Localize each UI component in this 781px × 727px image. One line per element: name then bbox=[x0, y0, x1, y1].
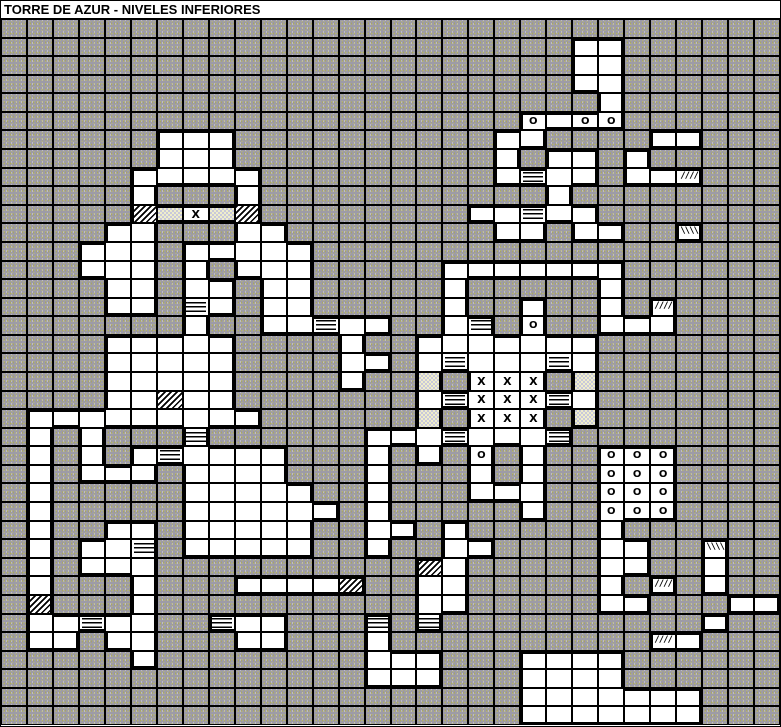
wall-cell bbox=[313, 446, 339, 465]
floor-cell bbox=[494, 130, 520, 149]
slope-down-cell: \\\\ bbox=[702, 539, 728, 558]
floor-cell bbox=[572, 391, 598, 410]
wall-cell bbox=[209, 558, 235, 577]
wall-cell bbox=[287, 168, 313, 187]
wall-cell bbox=[235, 372, 261, 391]
wall-cell bbox=[1, 483, 27, 502]
wall-cell bbox=[157, 483, 183, 502]
wall-cell bbox=[650, 595, 676, 614]
hatch-cell bbox=[416, 558, 442, 577]
wall-cell bbox=[391, 93, 417, 112]
door-cell bbox=[416, 409, 442, 428]
wall-cell bbox=[650, 335, 676, 354]
wall-cell bbox=[157, 75, 183, 94]
wall-cell bbox=[235, 706, 261, 725]
stairs-cell bbox=[183, 428, 209, 447]
wall-cell bbox=[494, 93, 520, 112]
floor-cell bbox=[209, 298, 235, 317]
wall-cell bbox=[53, 688, 79, 707]
floor-cell bbox=[27, 465, 53, 484]
wall-cell bbox=[442, 669, 468, 688]
wall-cell bbox=[494, 75, 520, 94]
wall-cell bbox=[598, 186, 624, 205]
wall-cell bbox=[53, 595, 79, 614]
wall-cell bbox=[339, 428, 365, 447]
floor-cell bbox=[313, 576, 339, 595]
floor-cell bbox=[572, 75, 598, 94]
wall-cell bbox=[1, 335, 27, 354]
floor-cell bbox=[598, 706, 624, 725]
wall-cell bbox=[702, 56, 728, 75]
wall-cell bbox=[494, 632, 520, 651]
wall-cell bbox=[468, 558, 494, 577]
wall-cell bbox=[468, 595, 494, 614]
wall-cell bbox=[391, 38, 417, 57]
floor-cell bbox=[235, 261, 261, 280]
wall-cell bbox=[624, 56, 650, 75]
wall-cell bbox=[624, 614, 650, 633]
wall-cell bbox=[676, 576, 702, 595]
wall-cell bbox=[105, 19, 131, 38]
wall-cell bbox=[313, 242, 339, 261]
floor-cell bbox=[546, 205, 572, 224]
wall-cell bbox=[365, 186, 391, 205]
wall-cell bbox=[365, 56, 391, 75]
wall-cell bbox=[157, 112, 183, 131]
wall-cell bbox=[131, 38, 157, 57]
wall-cell bbox=[468, 186, 494, 205]
wall-cell bbox=[1, 502, 27, 521]
floor-cell bbox=[209, 130, 235, 149]
wall-cell bbox=[79, 632, 105, 651]
floor-cell bbox=[157, 353, 183, 372]
wall-cell bbox=[520, 632, 546, 651]
wall-cell bbox=[728, 223, 754, 242]
wall-cell bbox=[235, 298, 261, 317]
floor-cell bbox=[572, 149, 598, 168]
floor-cell bbox=[27, 539, 53, 558]
floor-cell bbox=[624, 149, 650, 168]
wall-cell bbox=[287, 223, 313, 242]
wall-cell bbox=[105, 186, 131, 205]
wall-cell bbox=[365, 335, 391, 354]
wall-cell bbox=[365, 261, 391, 280]
wall-cell bbox=[416, 149, 442, 168]
floor-cell bbox=[598, 651, 624, 670]
wall-cell bbox=[676, 93, 702, 112]
floor-cell bbox=[105, 242, 131, 261]
wall-cell bbox=[183, 595, 209, 614]
wall-cell bbox=[494, 688, 520, 707]
wall-cell bbox=[53, 19, 79, 38]
wall-cell bbox=[494, 465, 520, 484]
floor-cell bbox=[416, 669, 442, 688]
wall-cell bbox=[339, 38, 365, 57]
wall-cell bbox=[546, 242, 572, 261]
wall-cell bbox=[598, 19, 624, 38]
wall-cell bbox=[235, 335, 261, 354]
floor-cell bbox=[105, 614, 131, 633]
wall-cell bbox=[520, 93, 546, 112]
wall-cell bbox=[365, 130, 391, 149]
floor-cell bbox=[572, 669, 598, 688]
wall-cell bbox=[365, 168, 391, 187]
hatch-cell bbox=[27, 595, 53, 614]
floor-cell bbox=[287, 502, 313, 521]
wall-cell bbox=[391, 56, 417, 75]
floor-cell bbox=[572, 56, 598, 75]
wall-cell bbox=[235, 56, 261, 75]
floor-cell bbox=[287, 298, 313, 317]
wall-cell bbox=[598, 205, 624, 224]
wall-cell bbox=[702, 130, 728, 149]
floor-cell bbox=[598, 279, 624, 298]
floor-cell bbox=[365, 502, 391, 521]
wall-cell bbox=[261, 19, 287, 38]
wall-cell bbox=[235, 112, 261, 131]
wall-cell bbox=[313, 521, 339, 540]
wall-cell bbox=[261, 595, 287, 614]
floor-cell bbox=[494, 168, 520, 187]
wall-cell bbox=[261, 558, 287, 577]
floor-cell bbox=[235, 483, 261, 502]
floor-cell bbox=[131, 391, 157, 410]
wall-cell bbox=[27, 335, 53, 354]
wall-cell bbox=[339, 168, 365, 187]
wall-cell bbox=[572, 130, 598, 149]
wall-cell bbox=[235, 688, 261, 707]
wall-cell bbox=[157, 428, 183, 447]
wall-cell bbox=[702, 502, 728, 521]
wall-cell bbox=[157, 706, 183, 725]
wall-cell bbox=[209, 632, 235, 651]
wall-cell bbox=[157, 242, 183, 261]
wall-cell bbox=[105, 149, 131, 168]
wall-cell bbox=[79, 391, 105, 410]
wall-cell bbox=[53, 130, 79, 149]
wall-cell bbox=[105, 112, 131, 131]
wall-cell bbox=[313, 669, 339, 688]
wall-cell bbox=[624, 409, 650, 428]
wall-cell bbox=[183, 706, 209, 725]
wall-cell bbox=[79, 483, 105, 502]
wall-cell bbox=[416, 168, 442, 187]
wall-cell bbox=[1, 558, 27, 577]
floor-cell bbox=[79, 261, 105, 280]
wall-cell bbox=[79, 75, 105, 94]
wall-cell bbox=[79, 205, 105, 224]
wall-cell bbox=[339, 186, 365, 205]
wall-cell bbox=[105, 688, 131, 707]
floor-cell bbox=[598, 261, 624, 280]
wall-cell bbox=[183, 38, 209, 57]
floor-cell bbox=[131, 335, 157, 354]
wall-cell bbox=[105, 205, 131, 224]
floor-cell bbox=[209, 409, 235, 428]
wall-cell bbox=[1, 186, 27, 205]
wall-cell bbox=[650, 38, 676, 57]
wall-cell bbox=[546, 614, 572, 633]
floor-cell bbox=[209, 168, 235, 187]
wall-cell bbox=[442, 186, 468, 205]
wall-cell bbox=[391, 539, 417, 558]
wall-cell bbox=[572, 502, 598, 521]
wall-cell bbox=[157, 465, 183, 484]
marker-o-cell: O bbox=[598, 465, 624, 484]
wall-cell bbox=[494, 706, 520, 725]
wall-cell bbox=[754, 19, 780, 38]
wall-cell bbox=[702, 149, 728, 168]
wall-cell bbox=[546, 446, 572, 465]
wall-cell bbox=[702, 261, 728, 280]
floor-cell bbox=[261, 261, 287, 280]
wall-cell bbox=[1, 93, 27, 112]
wall-cell bbox=[676, 372, 702, 391]
floor-cell bbox=[546, 669, 572, 688]
wall-cell bbox=[313, 595, 339, 614]
wall-cell bbox=[416, 706, 442, 725]
marker-o-cell: O bbox=[624, 446, 650, 465]
wall-cell bbox=[702, 706, 728, 725]
wall-cell bbox=[650, 93, 676, 112]
wall-cell bbox=[53, 168, 79, 187]
wall-cell bbox=[650, 558, 676, 577]
wall-cell bbox=[468, 614, 494, 633]
wall-cell bbox=[754, 558, 780, 577]
wall-cell bbox=[572, 558, 598, 577]
wall-cell bbox=[79, 149, 105, 168]
floor-cell bbox=[520, 261, 546, 280]
floor-cell bbox=[209, 149, 235, 168]
wall-cell bbox=[702, 205, 728, 224]
floor-cell bbox=[598, 93, 624, 112]
wall-cell bbox=[79, 688, 105, 707]
wall-cell bbox=[1, 391, 27, 410]
floor-cell bbox=[287, 316, 313, 335]
stairs-cell bbox=[313, 316, 339, 335]
floor-cell bbox=[209, 446, 235, 465]
wall-cell bbox=[520, 279, 546, 298]
wall-cell bbox=[702, 465, 728, 484]
wall-cell bbox=[572, 595, 598, 614]
floor-cell bbox=[598, 75, 624, 94]
floor-cell bbox=[572, 335, 598, 354]
floor-cell bbox=[235, 632, 261, 651]
wall-cell bbox=[209, 261, 235, 280]
floor-cell bbox=[494, 261, 520, 280]
floor-cell bbox=[365, 483, 391, 502]
wall-cell bbox=[624, 391, 650, 410]
wall-cell bbox=[624, 651, 650, 670]
floor-cell bbox=[624, 688, 650, 707]
floor-cell bbox=[624, 595, 650, 614]
wall-cell bbox=[79, 19, 105, 38]
floor-cell bbox=[261, 279, 287, 298]
wall-cell bbox=[235, 130, 261, 149]
wall-cell bbox=[416, 632, 442, 651]
wall-cell bbox=[339, 706, 365, 725]
floor-cell bbox=[287, 483, 313, 502]
wall-cell bbox=[468, 502, 494, 521]
floor-cell bbox=[598, 38, 624, 57]
wall-cell bbox=[27, 688, 53, 707]
wall-cell bbox=[313, 483, 339, 502]
wall-cell bbox=[157, 502, 183, 521]
wall-cell bbox=[624, 93, 650, 112]
wall-cell bbox=[1, 465, 27, 484]
stairs-cell bbox=[183, 298, 209, 317]
wall-cell bbox=[287, 93, 313, 112]
floor-cell bbox=[365, 521, 391, 540]
floor-cell bbox=[365, 316, 391, 335]
floor-cell bbox=[468, 465, 494, 484]
wall-cell bbox=[676, 56, 702, 75]
wall-cell bbox=[287, 688, 313, 707]
wall-cell bbox=[53, 539, 79, 558]
wall-cell bbox=[157, 93, 183, 112]
wall-cell bbox=[339, 75, 365, 94]
wall-cell bbox=[572, 298, 598, 317]
wall-cell bbox=[339, 409, 365, 428]
wall-cell bbox=[702, 75, 728, 94]
wall-cell bbox=[546, 483, 572, 502]
floor-cell bbox=[261, 242, 287, 261]
wall-cell bbox=[546, 56, 572, 75]
wall-cell bbox=[728, 19, 754, 38]
wall-cell bbox=[27, 651, 53, 670]
floor-cell bbox=[365, 446, 391, 465]
wall-cell bbox=[416, 205, 442, 224]
wall-cell bbox=[183, 669, 209, 688]
wall-cell bbox=[235, 149, 261, 168]
floor-cell bbox=[572, 261, 598, 280]
wall-cell bbox=[572, 521, 598, 540]
wall-cell bbox=[702, 279, 728, 298]
wall-cell bbox=[183, 93, 209, 112]
wall-cell bbox=[598, 353, 624, 372]
wall-cell bbox=[1, 316, 27, 335]
wall-cell bbox=[754, 465, 780, 484]
wall-cell bbox=[27, 279, 53, 298]
marker-x-cell: X bbox=[520, 409, 546, 428]
wall-cell bbox=[183, 19, 209, 38]
floor-cell bbox=[520, 335, 546, 354]
wall-cell bbox=[313, 93, 339, 112]
wall-cell bbox=[157, 261, 183, 280]
floor-cell bbox=[79, 558, 105, 577]
wall-cell bbox=[183, 614, 209, 633]
wall-cell bbox=[131, 669, 157, 688]
wall-cell bbox=[53, 149, 79, 168]
floor-cell bbox=[79, 465, 105, 484]
wall-cell bbox=[27, 186, 53, 205]
wall-cell bbox=[131, 75, 157, 94]
wall-cell bbox=[313, 149, 339, 168]
wall-cell bbox=[754, 409, 780, 428]
wall-cell bbox=[546, 316, 572, 335]
wall-cell bbox=[702, 242, 728, 261]
wall-cell bbox=[235, 595, 261, 614]
wall-cell bbox=[339, 298, 365, 317]
wall-cell bbox=[728, 353, 754, 372]
floor-cell bbox=[391, 521, 417, 540]
floor-cell bbox=[53, 409, 79, 428]
wall-cell bbox=[494, 279, 520, 298]
marker-x-cell: X bbox=[494, 391, 520, 410]
wall-cell bbox=[546, 75, 572, 94]
floor-cell bbox=[157, 372, 183, 391]
wall-cell bbox=[391, 614, 417, 633]
floor-cell bbox=[416, 335, 442, 354]
wall-cell bbox=[365, 576, 391, 595]
wall-cell bbox=[105, 56, 131, 75]
wall-cell bbox=[416, 261, 442, 280]
floor-cell bbox=[546, 112, 572, 131]
slope-down-cell: \\\\ bbox=[676, 223, 702, 242]
wall-cell bbox=[676, 483, 702, 502]
wall-cell bbox=[702, 353, 728, 372]
floor-cell bbox=[650, 168, 676, 187]
wall-cell bbox=[728, 242, 754, 261]
wall-cell bbox=[313, 688, 339, 707]
wall-cell bbox=[105, 130, 131, 149]
wall-cell bbox=[391, 112, 417, 131]
wall-cell bbox=[728, 632, 754, 651]
floor-cell bbox=[131, 558, 157, 577]
wall-cell bbox=[650, 539, 676, 558]
floor-cell bbox=[235, 614, 261, 633]
wall-cell bbox=[494, 539, 520, 558]
wall-cell bbox=[442, 242, 468, 261]
marker-o-cell: O bbox=[650, 465, 676, 484]
floor-cell bbox=[261, 316, 287, 335]
wall-cell bbox=[728, 56, 754, 75]
wall-cell bbox=[442, 688, 468, 707]
wall-cell bbox=[546, 558, 572, 577]
wall-cell bbox=[754, 205, 780, 224]
wall-cell bbox=[27, 261, 53, 280]
wall-cell bbox=[287, 205, 313, 224]
wall-cell bbox=[520, 521, 546, 540]
wall-cell bbox=[754, 483, 780, 502]
wall-cell bbox=[624, 353, 650, 372]
wall-cell bbox=[313, 75, 339, 94]
wall-cell bbox=[1, 38, 27, 57]
wall-cell bbox=[702, 298, 728, 317]
floor-cell bbox=[131, 223, 157, 242]
wall-cell bbox=[650, 205, 676, 224]
marker-x-cell: X bbox=[494, 372, 520, 391]
wall-cell bbox=[79, 353, 105, 372]
wall-cell bbox=[598, 614, 624, 633]
floor-cell bbox=[598, 576, 624, 595]
floor-cell bbox=[131, 353, 157, 372]
wall-cell bbox=[624, 205, 650, 224]
wall-cell bbox=[313, 614, 339, 633]
wall-cell bbox=[572, 93, 598, 112]
wall-cell bbox=[79, 168, 105, 187]
wall-cell bbox=[546, 576, 572, 595]
wall-cell bbox=[53, 279, 79, 298]
wall-cell bbox=[650, 353, 676, 372]
wall-cell bbox=[676, 279, 702, 298]
wall-cell bbox=[313, 391, 339, 410]
wall-cell bbox=[702, 688, 728, 707]
wall-cell bbox=[468, 19, 494, 38]
wall-cell bbox=[105, 502, 131, 521]
wall-cell bbox=[1, 149, 27, 168]
marker-o-cell: O bbox=[624, 465, 650, 484]
